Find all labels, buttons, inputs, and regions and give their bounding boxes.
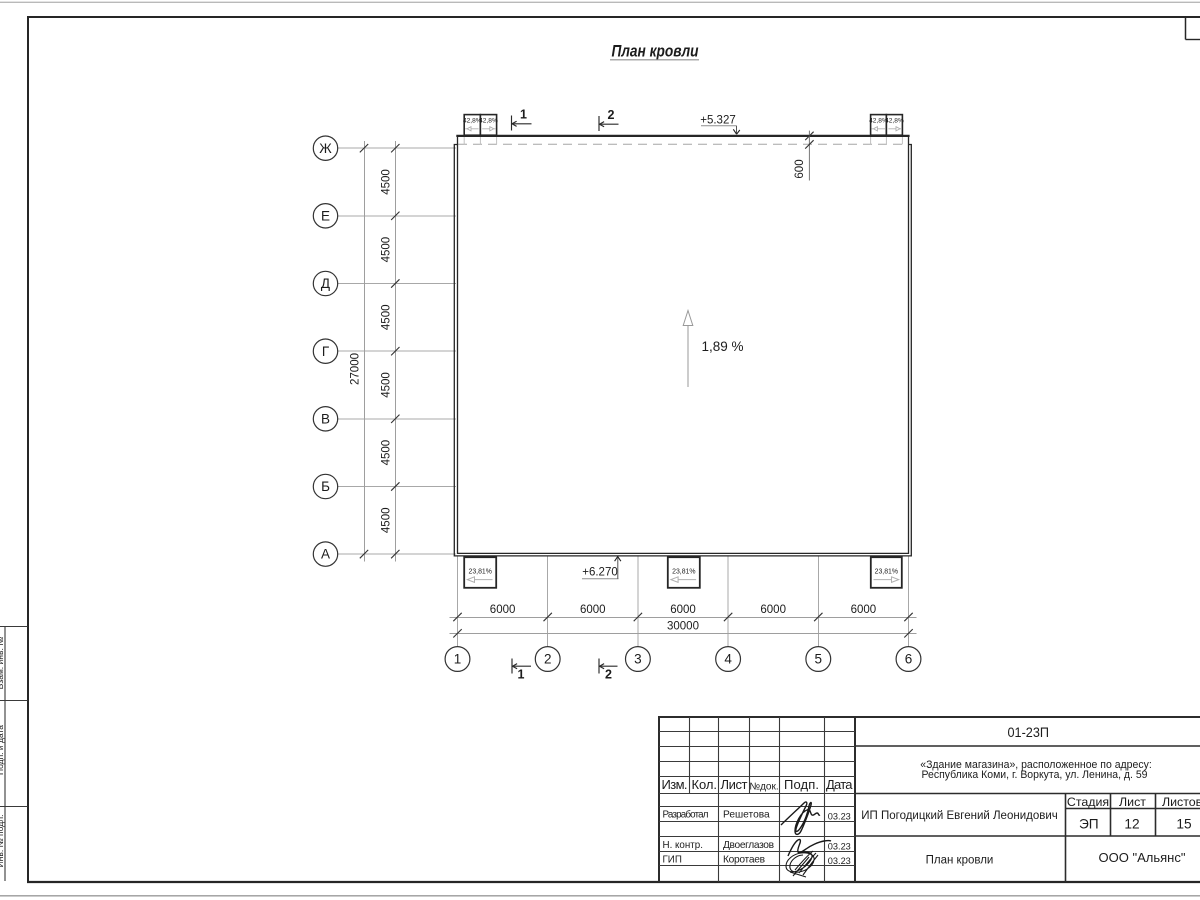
svg-text:Коротаев: Коротаев bbox=[723, 854, 765, 865]
svg-text:23,81%: 23,81% bbox=[469, 568, 492, 575]
svg-text:6000: 6000 bbox=[760, 604, 786, 616]
svg-text:30000: 30000 bbox=[667, 621, 699, 633]
svg-text:6: 6 bbox=[905, 652, 913, 667]
svg-text:Стадия: Стадия bbox=[1067, 795, 1109, 809]
svg-text:2: 2 bbox=[605, 668, 612, 682]
svg-text:4500: 4500 bbox=[381, 508, 393, 534]
svg-text:4500: 4500 bbox=[381, 372, 393, 398]
svg-text:Решетова: Решетова bbox=[723, 809, 770, 820]
svg-text:Подп.: Подп. bbox=[784, 777, 819, 792]
svg-text:Лист: Лист bbox=[721, 777, 748, 792]
svg-text:1,89 %: 1,89 % bbox=[702, 339, 744, 354]
svg-text:Республика Коми, г. Воркута, у: Республика Коми, г. Воркута, ул. Ленина,… bbox=[922, 769, 1148, 781]
svg-text:03.23: 03.23 bbox=[828, 812, 851, 822]
svg-text:Дата: Дата bbox=[826, 777, 853, 792]
svg-text:6000: 6000 bbox=[580, 604, 606, 616]
svg-text:3: 3 bbox=[634, 652, 642, 667]
svg-text:ЭП: ЭП bbox=[1079, 817, 1099, 832]
svg-text:4500: 4500 bbox=[381, 169, 393, 195]
svg-text:Г: Г bbox=[322, 344, 330, 359]
svg-text:4: 4 bbox=[724, 652, 732, 667]
svg-text:ГИП: ГИП bbox=[663, 855, 682, 866]
svg-text:4500: 4500 bbox=[381, 440, 393, 466]
svg-text:Взам. инв. №: Взам. инв. № bbox=[0, 637, 5, 690]
svg-text:12: 12 bbox=[1124, 817, 1139, 832]
svg-text:1: 1 bbox=[520, 108, 527, 122]
svg-text:Лист: Лист bbox=[1119, 795, 1146, 809]
svg-text:27000: 27000 bbox=[350, 353, 362, 385]
svg-text:2: 2 bbox=[544, 652, 552, 667]
svg-text:42,8%: 42,8% bbox=[885, 117, 904, 124]
svg-text:Ж: Ж bbox=[319, 141, 332, 156]
svg-text:План кровли: План кровли bbox=[926, 855, 994, 867]
svg-text:6000: 6000 bbox=[490, 604, 516, 616]
svg-text:15: 15 bbox=[1176, 817, 1192, 832]
svg-text:А: А bbox=[321, 547, 330, 562]
svg-text:4500: 4500 bbox=[381, 237, 393, 263]
svg-text:В: В bbox=[321, 411, 330, 426]
svg-text:42,8%: 42,8% bbox=[479, 117, 498, 124]
svg-text:23,81%: 23,81% bbox=[875, 568, 898, 575]
svg-text:Двоеглазов: Двоеглазов bbox=[723, 840, 774, 851]
svg-text:План кровли: План кровли bbox=[612, 43, 699, 61]
svg-text:Изм.: Изм. bbox=[662, 777, 688, 792]
svg-text:6000: 6000 bbox=[670, 604, 696, 616]
svg-text:ООО "Альянс": ООО "Альянс" bbox=[1099, 850, 1186, 865]
svg-text:2: 2 bbox=[608, 108, 615, 122]
svg-text:Н. контр.: Н. контр. bbox=[663, 840, 703, 851]
svg-text:5: 5 bbox=[815, 652, 823, 667]
svg-text:Д: Д bbox=[321, 276, 330, 291]
svg-text:Разработал: Разработал bbox=[663, 810, 709, 821]
svg-text:4500: 4500 bbox=[381, 305, 393, 331]
svg-text:Е: Е bbox=[321, 208, 330, 223]
svg-text:03.23: 03.23 bbox=[828, 856, 851, 866]
svg-text:01-23П: 01-23П bbox=[1008, 724, 1050, 740]
svg-text:03.23: 03.23 bbox=[828, 842, 851, 852]
svg-text:Кол.: Кол. bbox=[692, 777, 718, 792]
svg-text:Листов: Листов bbox=[1162, 795, 1200, 809]
svg-text:1: 1 bbox=[518, 668, 525, 682]
svg-text:Инв. № подл.: Инв. № подл. bbox=[0, 815, 5, 868]
svg-text:600: 600 bbox=[794, 159, 806, 178]
svg-text:+6.270: +6.270 bbox=[582, 566, 618, 578]
svg-text:ИП Погодицкий Евгений Леонидов: ИП Погодицкий Евгений Леонидович bbox=[861, 810, 1058, 822]
svg-text:6000: 6000 bbox=[851, 604, 877, 616]
svg-text:+5.327: +5.327 bbox=[700, 114, 736, 126]
svg-text:Подп. и дата: Подп. и дата bbox=[0, 725, 5, 775]
svg-text:23,81%: 23,81% bbox=[672, 568, 695, 575]
svg-text:1: 1 bbox=[454, 652, 462, 667]
svg-text:Б: Б bbox=[321, 479, 330, 494]
svg-text:№док.: №док. bbox=[749, 782, 778, 793]
